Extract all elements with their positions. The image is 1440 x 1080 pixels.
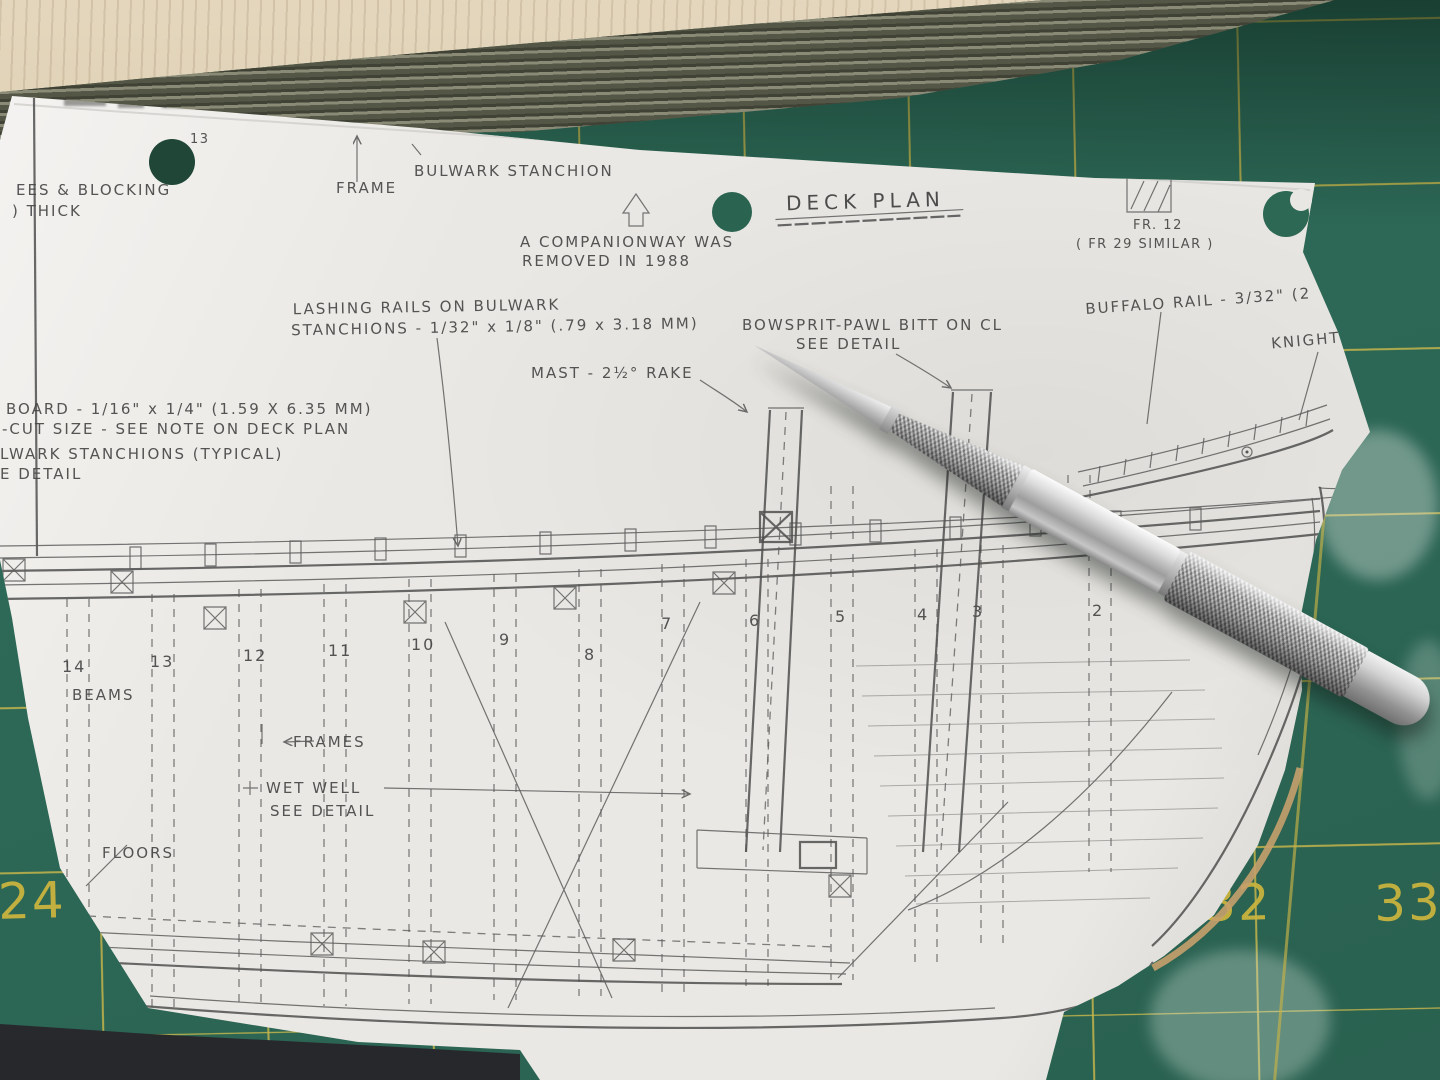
label-bulwark-typical: LWARK STANCHIONS (TYPICAL) bbox=[0, 445, 283, 463]
knighthead-leader bbox=[1299, 352, 1318, 420]
frame-number: 7 bbox=[661, 614, 673, 633]
title-group: DECK PLAN bbox=[775, 187, 964, 226]
diagonal-braces bbox=[445, 602, 1008, 1008]
fr12-detail: FR. 12 ( FR 29 SIMILAR ) bbox=[1076, 178, 1214, 252]
label-beams: BEAMS bbox=[72, 686, 135, 704]
frame-number: 12 bbox=[243, 646, 267, 665]
label-knighthead: KNIGHTI bbox=[1270, 328, 1347, 353]
mast-leader bbox=[700, 380, 747, 412]
frame-number: 4 bbox=[917, 605, 929, 624]
companionway-arrow bbox=[623, 194, 649, 226]
label-see-detail-cut: E DETAIL bbox=[0, 465, 82, 483]
wet-well-leader bbox=[384, 788, 690, 794]
frame-number: 8 bbox=[584, 645, 596, 664]
label-buffalo-rail: BUFFALO RAIL - 3/32" (2 bbox=[1085, 284, 1312, 318]
plan-drawing: 14 13 12 11 10 9 8 7 6 5 4 3 2 bbox=[0, 0, 1440, 1080]
label-lashing-2: STANCHIONS - 1/32" x 1/8" (.79 x 3.18 MM… bbox=[291, 314, 699, 339]
frame-number: 10 bbox=[411, 635, 435, 654]
label-companionway-2: REMOVED IN 1988 bbox=[522, 252, 691, 270]
label-fr29-similar: ( FR 29 SIMILAR ) bbox=[1076, 237, 1214, 252]
punched-hole bbox=[712, 192, 752, 232]
label-trees-blocking: EES & BLOCKING bbox=[16, 181, 171, 199]
smudged-print bbox=[64, 98, 396, 115]
frame-number: 2 bbox=[1092, 601, 1104, 620]
buffalo-leader bbox=[1147, 312, 1161, 424]
frame-number: 9 bbox=[499, 630, 511, 649]
crossed-frame-boxes bbox=[3, 559, 851, 963]
photo-scene: 24 32 33 bbox=[0, 0, 1440, 1080]
label-fr12: FR. 12 bbox=[1133, 218, 1183, 233]
wet-well bbox=[697, 830, 867, 874]
annotations: EES & BLOCKING ) THICK 13 FRAME BULWARK … bbox=[0, 132, 1348, 886]
frame-number: 11 bbox=[328, 641, 352, 660]
label-companionway-1: A COMPANIONWAY WAS bbox=[520, 233, 734, 251]
label-lashing-1: LASHING RAILS ON BULWARK bbox=[293, 296, 561, 319]
keel-band bbox=[14, 913, 1153, 1028]
lashing-leader bbox=[437, 338, 458, 546]
page-title: DECK PLAN bbox=[786, 187, 945, 215]
label-board-1: BOARD - 1/16" x 1/4" (1.59 X 6.35 MM) bbox=[6, 400, 373, 418]
lashing-note: LASHING RAILS ON BULWARK STANCHIONS - 1/… bbox=[291, 293, 699, 339]
label-mast-rake: MAST - 2½° RAKE bbox=[531, 364, 694, 382]
label-board-2: -CUT SIZE - SEE NOTE ON DECK PLAN bbox=[2, 420, 350, 438]
frame-number: 3 bbox=[972, 602, 984, 621]
plan-border-line bbox=[34, 98, 37, 556]
label-wet-well-1: WET WELL bbox=[266, 779, 361, 797]
mast bbox=[746, 408, 804, 852]
label-hole-13: 13 bbox=[190, 132, 210, 147]
frame-number: 13 bbox=[150, 652, 174, 671]
wet-well-cross bbox=[243, 781, 258, 795]
bulwark-tick bbox=[412, 144, 421, 155]
under-sheet-edge bbox=[14, 104, 1310, 190]
label-wet-well-2: SEE DETAIL bbox=[270, 802, 375, 820]
label-frames: FRAMES bbox=[293, 733, 366, 751]
label-bulwark-stanchion: BULWARK STANCHION bbox=[414, 162, 614, 180]
bowsprit-leader bbox=[896, 354, 951, 388]
board-note: BOARD - 1/16" x 1/4" (1.59 X 6.35 MM) -C… bbox=[0, 400, 373, 483]
label-trees-blocking-2: ) THICK bbox=[12, 202, 82, 220]
punched-hole bbox=[149, 139, 195, 185]
label-frame: FRAME bbox=[336, 179, 397, 197]
frame-number: 14 bbox=[62, 657, 86, 676]
frame-number: 5 bbox=[835, 607, 847, 626]
torn-flap bbox=[1290, 189, 1312, 211]
